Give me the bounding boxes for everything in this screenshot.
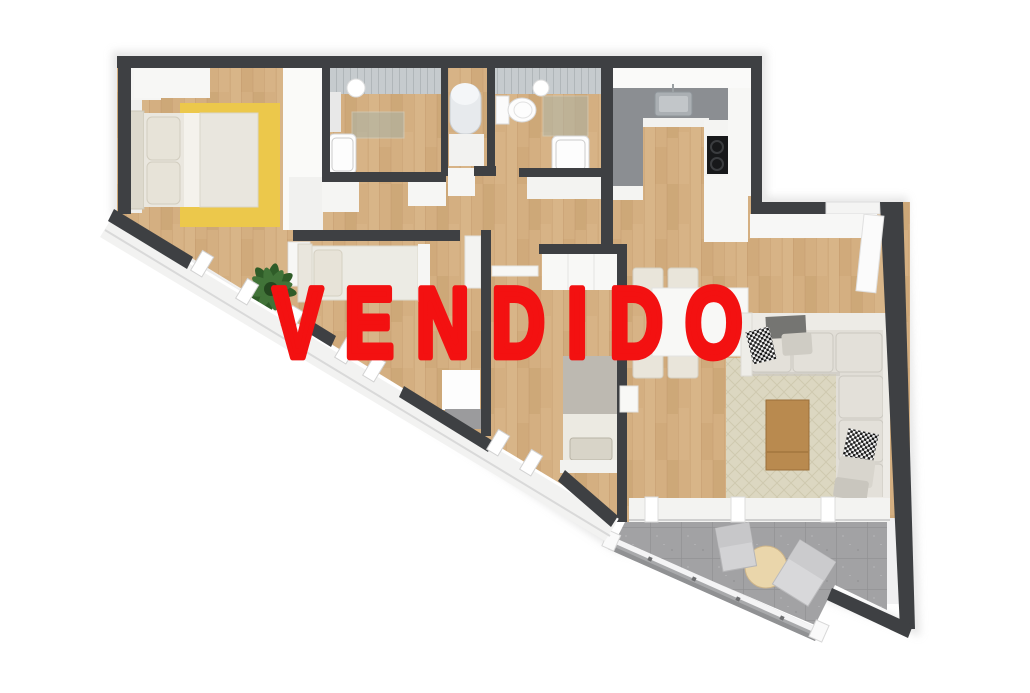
svg-text:VENDIDO: VENDIDO xyxy=(273,268,765,379)
